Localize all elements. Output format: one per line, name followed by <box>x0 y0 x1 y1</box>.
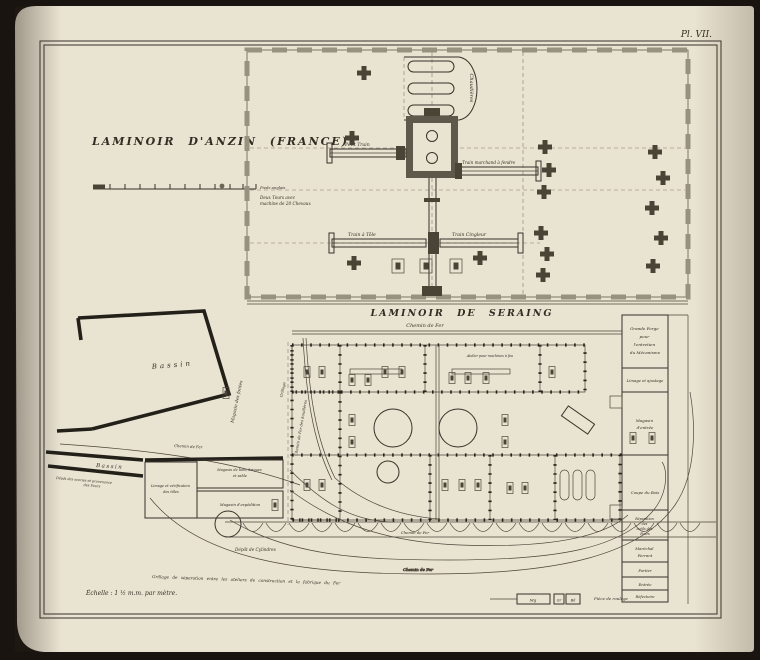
svg-text:Train à Tôle: Train à Tôle <box>348 231 376 238</box>
curve-railway-label: Chemin de Fer <box>403 567 434 572</box>
anzin-title: LAMINOIR D'ANZIN (FRANCE) <box>91 135 349 148</box>
svg-text:Train Cingleur: Train Cingleur <box>452 232 487 238</box>
book-photo-background: Pl. VII. LAMINOIR D'ANZIN (FRANCE) Pieds… <box>0 0 760 660</box>
seraing-title: LAMINOIR DE SERAING <box>369 308 553 319</box>
coupe-bois-label: Coupe du Bois <box>631 490 660 495</box>
shed-railway-label: Chemin de Fer <box>401 530 430 535</box>
plate-number: Pl. VII. <box>680 30 712 40</box>
svg-text:Train marchand à fendre: Train marchand à fendre <box>462 160 516 165</box>
piece-roulage-label: Pièce de roulage <box>593 596 629 601</box>
refectoire-label: Réfectoire <box>635 595 655 599</box>
svg-text:Chemin de Fer: Chemin de Fer <box>406 323 444 329</box>
svg-text:Bd: Bd <box>570 599 577 603</box>
chaudieres-label: Chaudières <box>468 74 475 103</box>
limage-ajustage-label: Limage et ajustage <box>626 378 665 383</box>
svg-text:Petit Train: Petit Train <box>344 142 370 148</box>
scale-note: Échelle : 1 ½ m.m. par mètre. <box>85 589 177 597</box>
atelier-machines-label: Atelier pour machines à feu <box>466 354 513 358</box>
anzin-scale-label: Pieds anglais <box>259 185 285 190</box>
portier-label: Portier <box>637 568 651 573</box>
svg-text:Mg: Mg <box>529 598 537 603</box>
svg-text:Gr: Gr <box>557 599 562 603</box>
plate-drawing: Pl. VII. LAMINOIR D'ANZIN (FRANCE) Pieds… <box>0 0 760 660</box>
entree-label: Entrée <box>637 582 652 587</box>
magasin-expedition-label: Magasin d'expédition <box>219 503 261 507</box>
anzin-engine-block <box>406 108 458 178</box>
depot-cylindres-label: Dépôt de Cylindres <box>234 547 276 552</box>
